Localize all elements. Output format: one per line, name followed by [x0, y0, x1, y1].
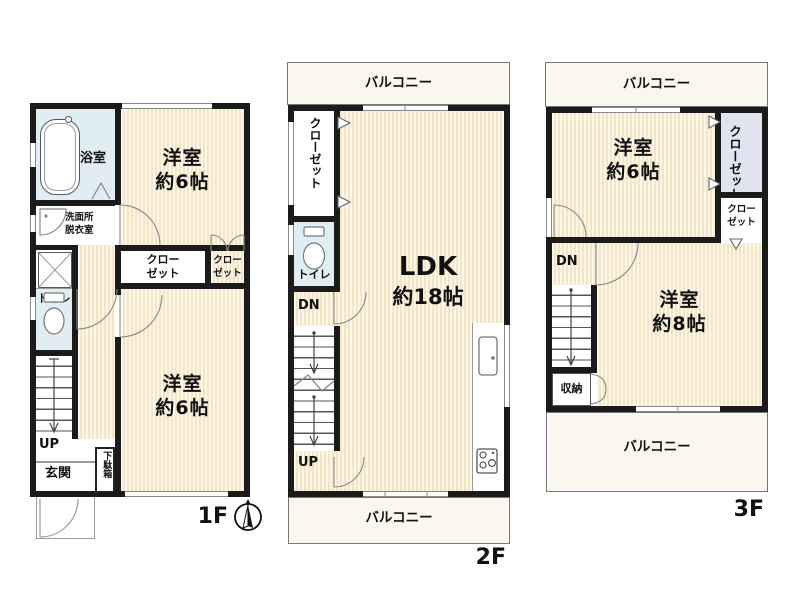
- stairs-2f: [294, 326, 334, 451]
- wall: [36, 350, 78, 356]
- room-8jo-label-3f: 洋室 約8帖: [597, 289, 762, 337]
- wall: [715, 192, 762, 198]
- balcony-south-2f: バルコニー: [288, 497, 510, 544]
- toilet-room-2f: トイレ: [294, 222, 334, 286]
- window: [288, 122, 294, 205]
- toilet-label-1f: トイレ: [36, 292, 72, 306]
- closet-small-3f: クロー ゼット: [721, 198, 762, 237]
- washroom-label: 洗面所 脱衣室: [65, 211, 94, 238]
- bathroom-label: 浴室: [80, 151, 106, 167]
- wall: [715, 113, 721, 237]
- balcony-south-3f: バルコニー: [546, 412, 768, 492]
- washer-pan-icon: [38, 252, 72, 288]
- wall: [115, 245, 244, 251]
- entrance-label: 玄関: [45, 466, 71, 482]
- balcony-north-label-2f: バルコニー: [288, 63, 509, 92]
- shoe-cabinet-label: 下駄箱: [100, 451, 111, 478]
- floor-3f-label: 3F: [684, 496, 764, 524]
- ldk-label: LDK 約18帖: [358, 251, 498, 310]
- bathtub-inner: [44, 123, 76, 191]
- room-north-label-1f: 洋室 約6帖: [121, 147, 244, 195]
- entrance-step-line: [36, 461, 95, 463]
- closet-east-label: クロー ゼット: [211, 255, 244, 281]
- bathtub-icon: [40, 119, 80, 195]
- balcony-north-label-3f: バルコニー: [546, 63, 767, 93]
- window: [30, 143, 36, 167]
- room-south-label-1f: 洋室 約6帖: [121, 373, 244, 421]
- balcony-south-label-2f: バルコニー: [289, 498, 509, 527]
- window: [504, 325, 510, 407]
- window: [636, 406, 720, 412]
- stairs-down-label-2f: DN: [298, 298, 320, 314]
- window: [363, 105, 448, 111]
- window: [288, 225, 294, 255]
- compass-north-arrow-icon: [230, 495, 268, 535]
- wall: [72, 356, 78, 439]
- wall: [552, 367, 597, 373]
- balcony-north-3f: バルコニー: [545, 62, 768, 107]
- washroom-1f: 洗面所 脱衣室: [36, 206, 115, 245]
- window: [125, 491, 228, 497]
- bathroom-1f: 浴室: [36, 109, 115, 200]
- stairs-3f: [552, 285, 591, 367]
- window: [546, 198, 552, 237]
- closet-center-label: クロー ゼット: [121, 253, 205, 282]
- window: [363, 491, 448, 497]
- bath-faucet-icon: [65, 116, 72, 123]
- floor-2f-plan: バルコニー クローゼット トイレ DN UP LDK 約18帖 バルコニー: [286, 60, 514, 572]
- closet-2f: クローゼット: [294, 111, 334, 216]
- closet-small-label-3f: クロー ゼット: [721, 204, 762, 230]
- closet-2f-label: クローゼット: [307, 117, 322, 189]
- floor-2f-outline: クローゼット トイレ DN UP LDK 約18帖: [288, 105, 510, 497]
- floor-3f-outline: 洋室 約6帖 洋室 約8帖 DN 収納 クローゼット: [546, 107, 768, 412]
- window: [30, 297, 36, 320]
- balcony-north-2f: バルコニー: [287, 62, 510, 105]
- toilet-room-1f: トイレ: [36, 288, 72, 350]
- wall: [72, 250, 78, 356]
- kitchen-counter: [472, 323, 504, 491]
- floor-1f-label: 1F: [184, 503, 228, 531]
- room-western-8jo-3f: 洋室 約8帖: [597, 243, 762, 406]
- toilet-label-2f: トイレ: [294, 268, 334, 282]
- storage-3f: 収納: [552, 373, 591, 406]
- closet-center-1f: クロー ゼット: [121, 251, 205, 283]
- wall: [591, 285, 597, 370]
- window: [592, 107, 680, 113]
- room-western-6jo-3f: 洋室 約6帖: [552, 113, 715, 237]
- floor-3f-plan: バルコニー 洋室 約6帖 洋室 約8帖 DN 収納: [544, 58, 772, 530]
- stairs-up-label-2f: UP: [298, 455, 318, 471]
- window: [30, 215, 36, 232]
- wall: [121, 283, 244, 289]
- wall: [115, 109, 121, 205]
- floor-1f-plan: 浴室 洗面所 脱衣室 トイレ UP 玄関 下駄箱: [28, 93, 260, 555]
- storage-label-3f: 収納: [553, 382, 590, 396]
- hallway-1f: [78, 245, 115, 439]
- wall: [334, 111, 340, 292]
- wall: [552, 237, 721, 243]
- entrance-porch: [36, 497, 95, 539]
- window: [122, 103, 212, 109]
- wall: [115, 337, 121, 491]
- floor-2f-label: 2F: [436, 544, 506, 572]
- closet-north-label-3f: クローゼット: [727, 125, 742, 167]
- closet-east-1f: クロー ゼット: [211, 251, 244, 283]
- shoe-cabinet: 下駄箱: [95, 447, 115, 493]
- balcony-south-label-3f: バルコニー: [547, 413, 767, 456]
- wall: [334, 326, 340, 451]
- floor-1f-outline: 浴室 洗面所 脱衣室 トイレ UP 玄関 下駄箱: [30, 103, 250, 497]
- stairs-up-label-1f: UP: [39, 437, 59, 453]
- stairs-down-label-3f: DN: [556, 254, 578, 270]
- floorplan-page: 浴室 洗面所 脱衣室 トイレ UP 玄関 下駄箱: [0, 0, 800, 600]
- closet-north-3f: クローゼット: [721, 113, 762, 192]
- wall: [36, 200, 115, 206]
- wall: [205, 251, 211, 283]
- hallway-3f: DN: [552, 243, 597, 285]
- room-6jo-label-3f: 洋室 約6帖: [552, 137, 715, 185]
- stairs-1f: [36, 356, 72, 439]
